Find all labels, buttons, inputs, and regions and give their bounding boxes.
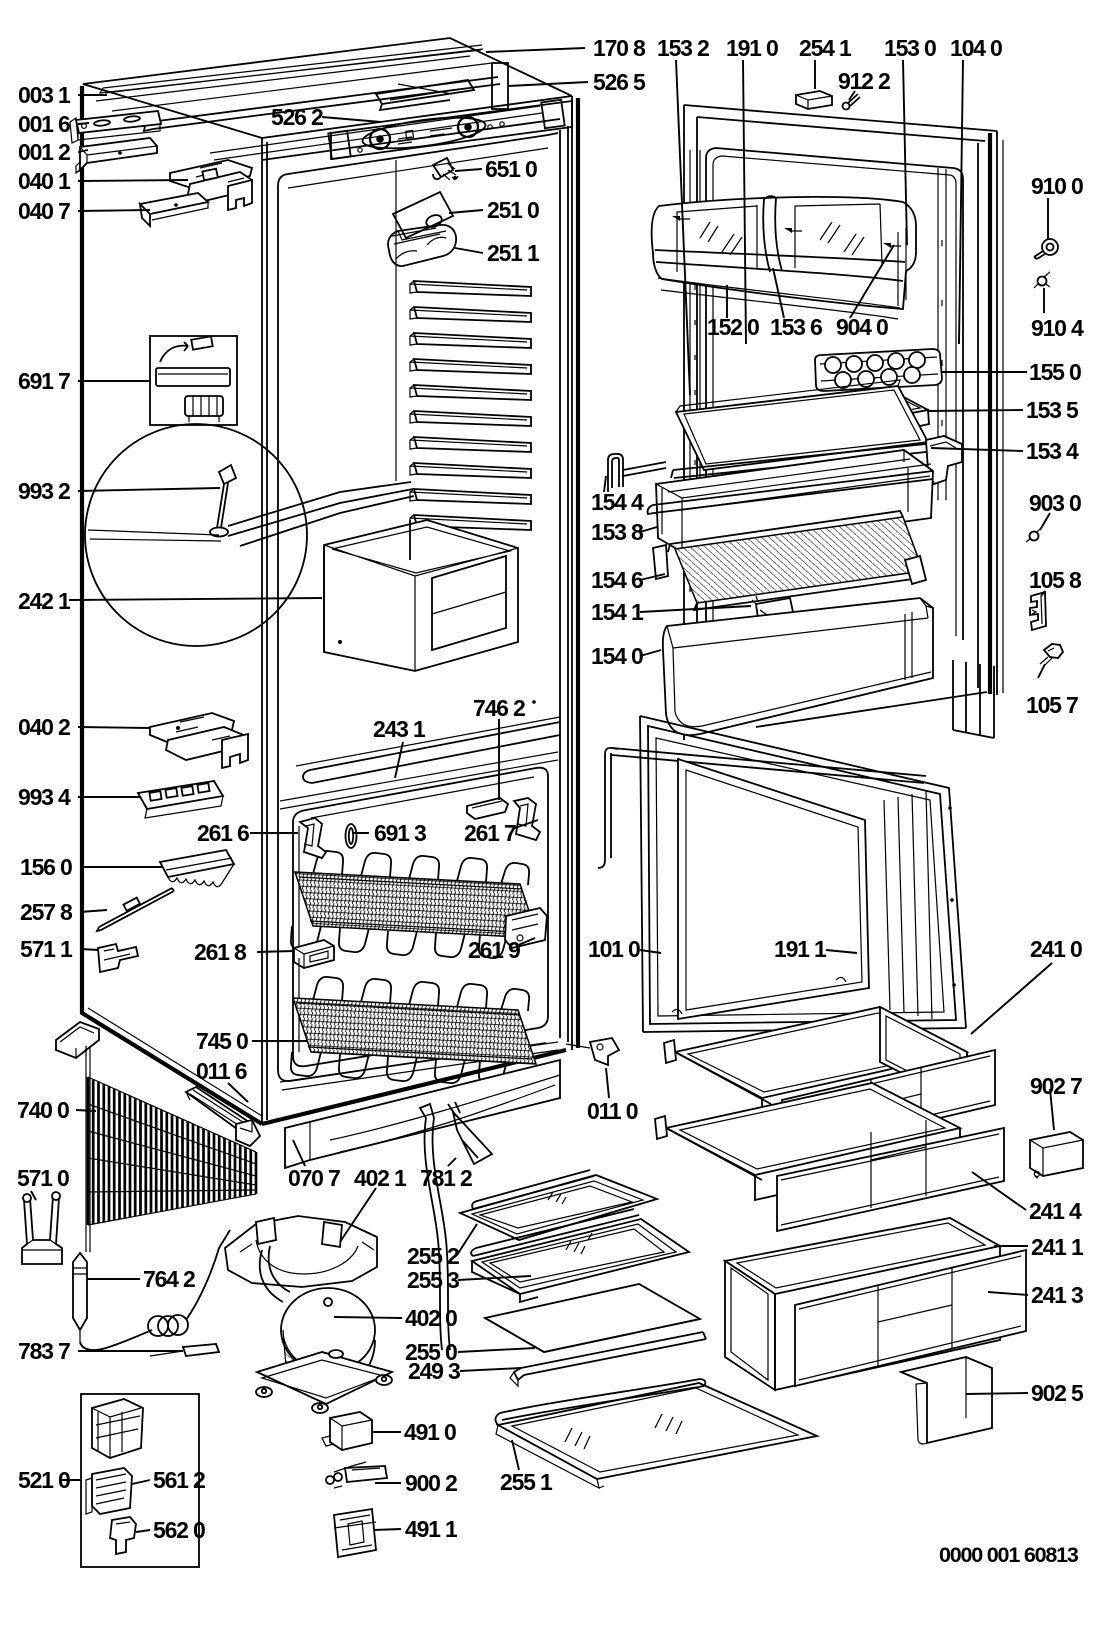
svg-text:571 1: 571 1: [20, 936, 73, 962]
svg-text:105 7: 105 7: [1026, 692, 1078, 718]
svg-text:154 6: 154 6: [591, 567, 643, 593]
svg-text:261 8: 261 8: [194, 939, 247, 965]
svg-text:740 0: 740 0: [17, 1097, 69, 1123]
svg-text:691 7: 691 7: [18, 368, 70, 394]
svg-text:745 0: 745 0: [196, 1028, 248, 1054]
svg-text:105 8: 105 8: [1029, 567, 1082, 593]
svg-text:255 2: 255 2: [407, 1243, 459, 1269]
svg-text:904 0: 904 0: [836, 314, 888, 340]
svg-text:153 2: 153 2: [657, 35, 709, 61]
svg-text:001 2: 001 2: [18, 139, 70, 165]
svg-text:900 2: 900 2: [405, 1470, 457, 1496]
svg-text:242 1: 242 1: [18, 588, 71, 614]
svg-text:249 3: 249 3: [408, 1358, 460, 1384]
svg-text:154 4: 154 4: [591, 489, 644, 515]
svg-text:070 7: 070 7: [288, 1165, 340, 1191]
svg-text:243 1: 243 1: [373, 716, 426, 742]
svg-text:491 1: 491 1: [405, 1516, 458, 1542]
svg-text:902 7: 902 7: [1030, 1073, 1082, 1099]
svg-text:170 8: 170 8: [593, 35, 646, 61]
svg-text:153 0: 153 0: [884, 35, 936, 61]
svg-text:191 1: 191 1: [774, 936, 827, 962]
svg-text:562 0: 562 0: [153, 1517, 205, 1543]
svg-text:153 5: 153 5: [1026, 397, 1079, 423]
svg-text:153 6: 153 6: [770, 314, 822, 340]
svg-text:902 5: 902 5: [1031, 1380, 1084, 1406]
svg-text:241 0: 241 0: [1030, 936, 1082, 962]
svg-text:261 6: 261 6: [197, 820, 249, 846]
svg-text:152 0: 152 0: [707, 314, 759, 340]
svg-text:0000 001 60813: 0000 001 60813: [939, 1543, 1079, 1567]
svg-text:156 0: 156 0: [20, 854, 72, 880]
svg-text:040 7: 040 7: [18, 198, 70, 224]
svg-text:261 7: 261 7: [464, 820, 516, 846]
svg-text:651 0: 651 0: [485, 156, 537, 182]
svg-text:402 0: 402 0: [405, 1305, 457, 1331]
svg-text:155 0: 155 0: [1029, 359, 1081, 385]
svg-text:526 5: 526 5: [593, 69, 646, 95]
svg-text:191 0: 191 0: [726, 35, 778, 61]
svg-text:001 6: 001 6: [18, 111, 70, 137]
svg-text:254 1: 254 1: [799, 35, 852, 61]
svg-text:561 2: 561 2: [153, 1467, 205, 1493]
svg-text:154 0: 154 0: [591, 643, 643, 669]
svg-text:011 0: 011 0: [587, 1098, 638, 1124]
svg-text:241 3: 241 3: [1031, 1282, 1083, 1308]
svg-text:153 8: 153 8: [591, 519, 644, 545]
svg-text:781 2: 781 2: [420, 1165, 472, 1191]
svg-text:251 1: 251 1: [487, 240, 540, 266]
svg-text:691 3: 691 3: [374, 820, 426, 846]
svg-text:402 1: 402 1: [354, 1165, 407, 1191]
svg-text:241 4: 241 4: [1029, 1198, 1082, 1224]
svg-text:104 0: 104 0: [950, 35, 1002, 61]
svg-text:040 2: 040 2: [18, 714, 70, 740]
svg-text:910 4: 910 4: [1031, 315, 1084, 341]
svg-text:993 2: 993 2: [18, 478, 70, 504]
svg-text:571 0: 571 0: [17, 1165, 69, 1191]
svg-text:040 1: 040 1: [18, 168, 71, 194]
svg-text:910 0: 910 0: [1031, 173, 1083, 199]
svg-text:764 2: 764 2: [143, 1266, 195, 1292]
svg-text:912 2: 912 2: [838, 68, 890, 94]
svg-text:011 6: 011 6: [196, 1058, 247, 1084]
svg-text:101 0: 101 0: [588, 936, 640, 962]
svg-text:783 7: 783 7: [18, 1338, 70, 1364]
svg-text:903 0: 903 0: [1029, 490, 1081, 516]
svg-text:746 2: 746 2: [473, 695, 525, 721]
svg-text:153 4: 153 4: [1026, 438, 1079, 464]
svg-text:154 1: 154 1: [591, 599, 644, 625]
svg-text:255 1: 255 1: [500, 1469, 553, 1495]
svg-text:251 0: 251 0: [487, 197, 539, 223]
svg-text:261 9: 261 9: [468, 937, 520, 963]
svg-text:491 0: 491 0: [404, 1419, 456, 1445]
svg-text:255 3: 255 3: [407, 1267, 459, 1293]
svg-text:993 4: 993 4: [18, 784, 71, 810]
svg-text:257 8: 257 8: [20, 899, 73, 925]
svg-text:241 1: 241 1: [1031, 1234, 1084, 1260]
svg-text:526 2: 526 2: [271, 104, 323, 130]
svg-text:003 1: 003 1: [18, 82, 71, 108]
